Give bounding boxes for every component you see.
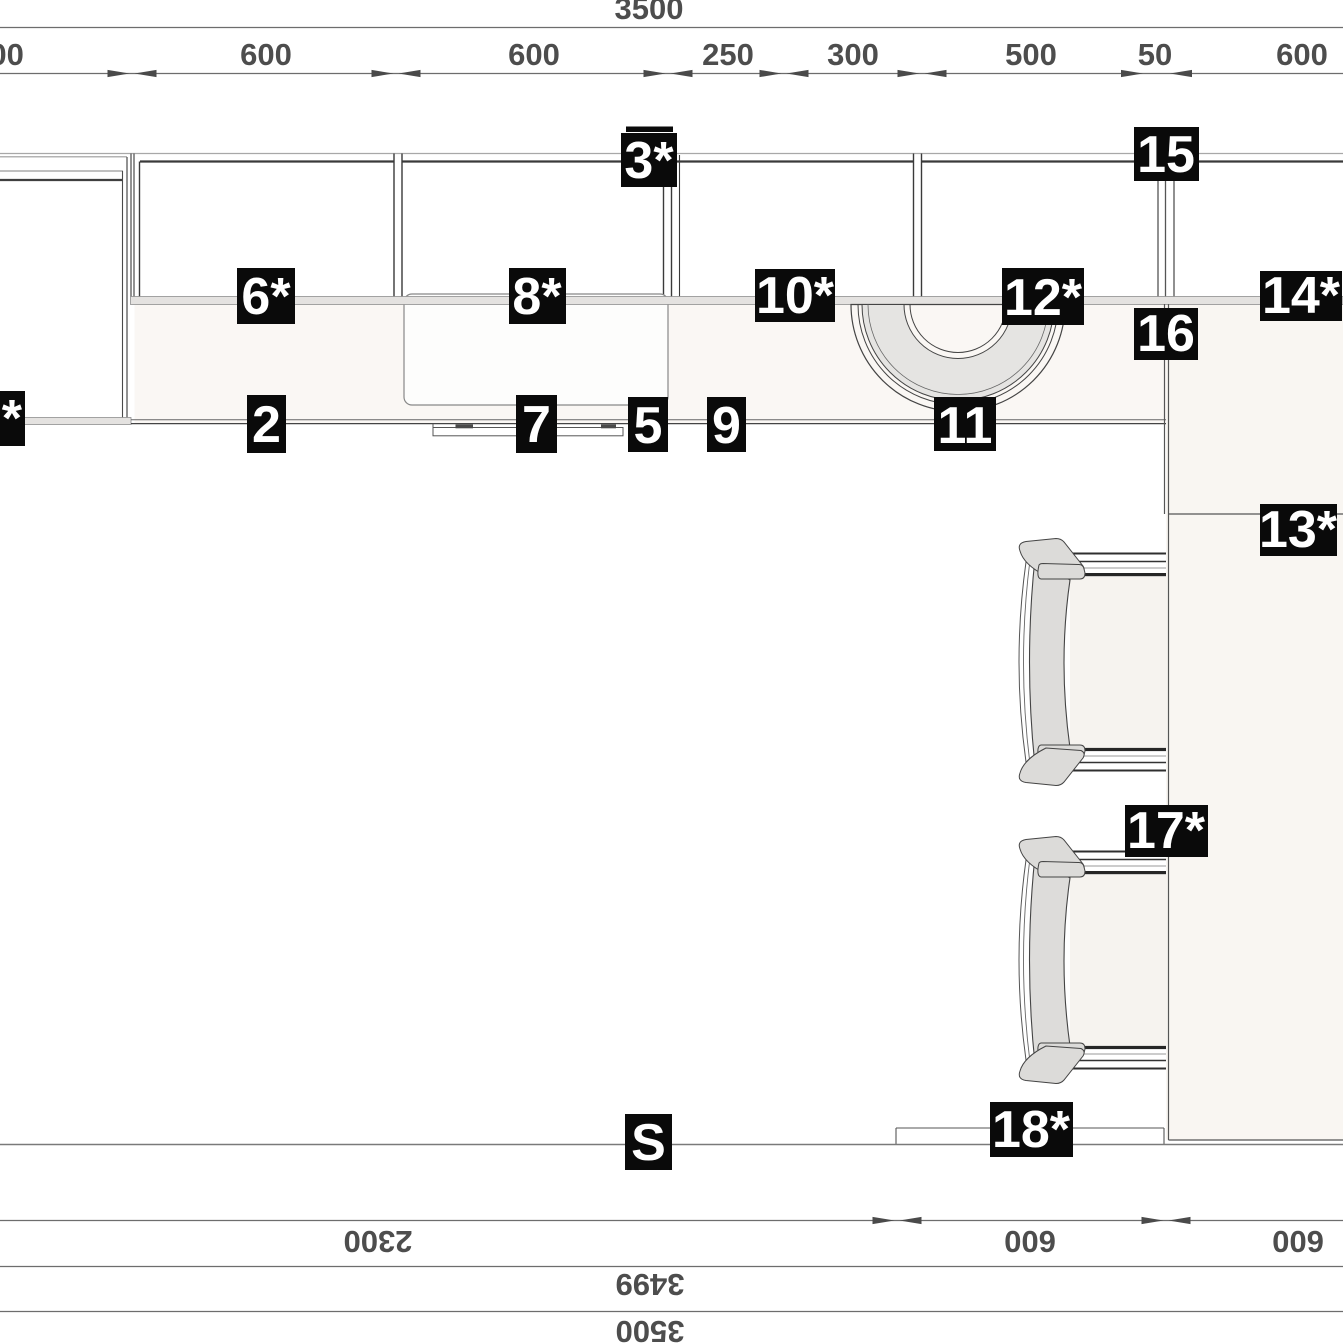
svg-text:3499: 3499 — [616, 1267, 685, 1302]
svg-text:13*: 13* — [1259, 501, 1338, 559]
svg-text:250: 250 — [702, 37, 754, 72]
svg-text:3*: 3* — [624, 132, 674, 190]
svg-text:600: 600 — [508, 37, 560, 72]
svg-text:S: S — [631, 1114, 666, 1172]
svg-text:600: 600 — [0, 37, 24, 72]
svg-text:15: 15 — [1137, 126, 1195, 184]
svg-text:600: 600 — [1004, 1224, 1056, 1259]
svg-text:18*: 18* — [992, 1101, 1071, 1159]
svg-text:5: 5 — [634, 397, 663, 455]
svg-text:50: 50 — [1138, 37, 1172, 72]
svg-text:10*: 10* — [756, 267, 835, 325]
svg-text:2300: 2300 — [344, 1224, 413, 1259]
svg-text:6*: 6* — [241, 268, 291, 326]
svg-text:11: 11 — [938, 397, 993, 455]
svg-text:600: 600 — [1272, 1224, 1324, 1259]
svg-text:*: * — [2, 390, 23, 448]
svg-text:600: 600 — [240, 37, 292, 72]
svg-text:14*: 14* — [1262, 267, 1341, 325]
svg-text:2: 2 — [252, 396, 281, 454]
svg-text:3500: 3500 — [616, 1314, 685, 1343]
svg-text:600: 600 — [1276, 37, 1328, 72]
svg-text:17*: 17* — [1127, 802, 1206, 860]
svg-text:8*: 8* — [512, 268, 562, 326]
svg-text:3500: 3500 — [615, 0, 684, 26]
svg-text:16: 16 — [1137, 305, 1195, 363]
svg-text:500: 500 — [1005, 37, 1057, 72]
svg-text:7: 7 — [522, 396, 551, 454]
svg-text:9: 9 — [712, 397, 741, 455]
svg-text:12*: 12* — [1004, 269, 1083, 327]
svg-text:300: 300 — [827, 37, 879, 72]
